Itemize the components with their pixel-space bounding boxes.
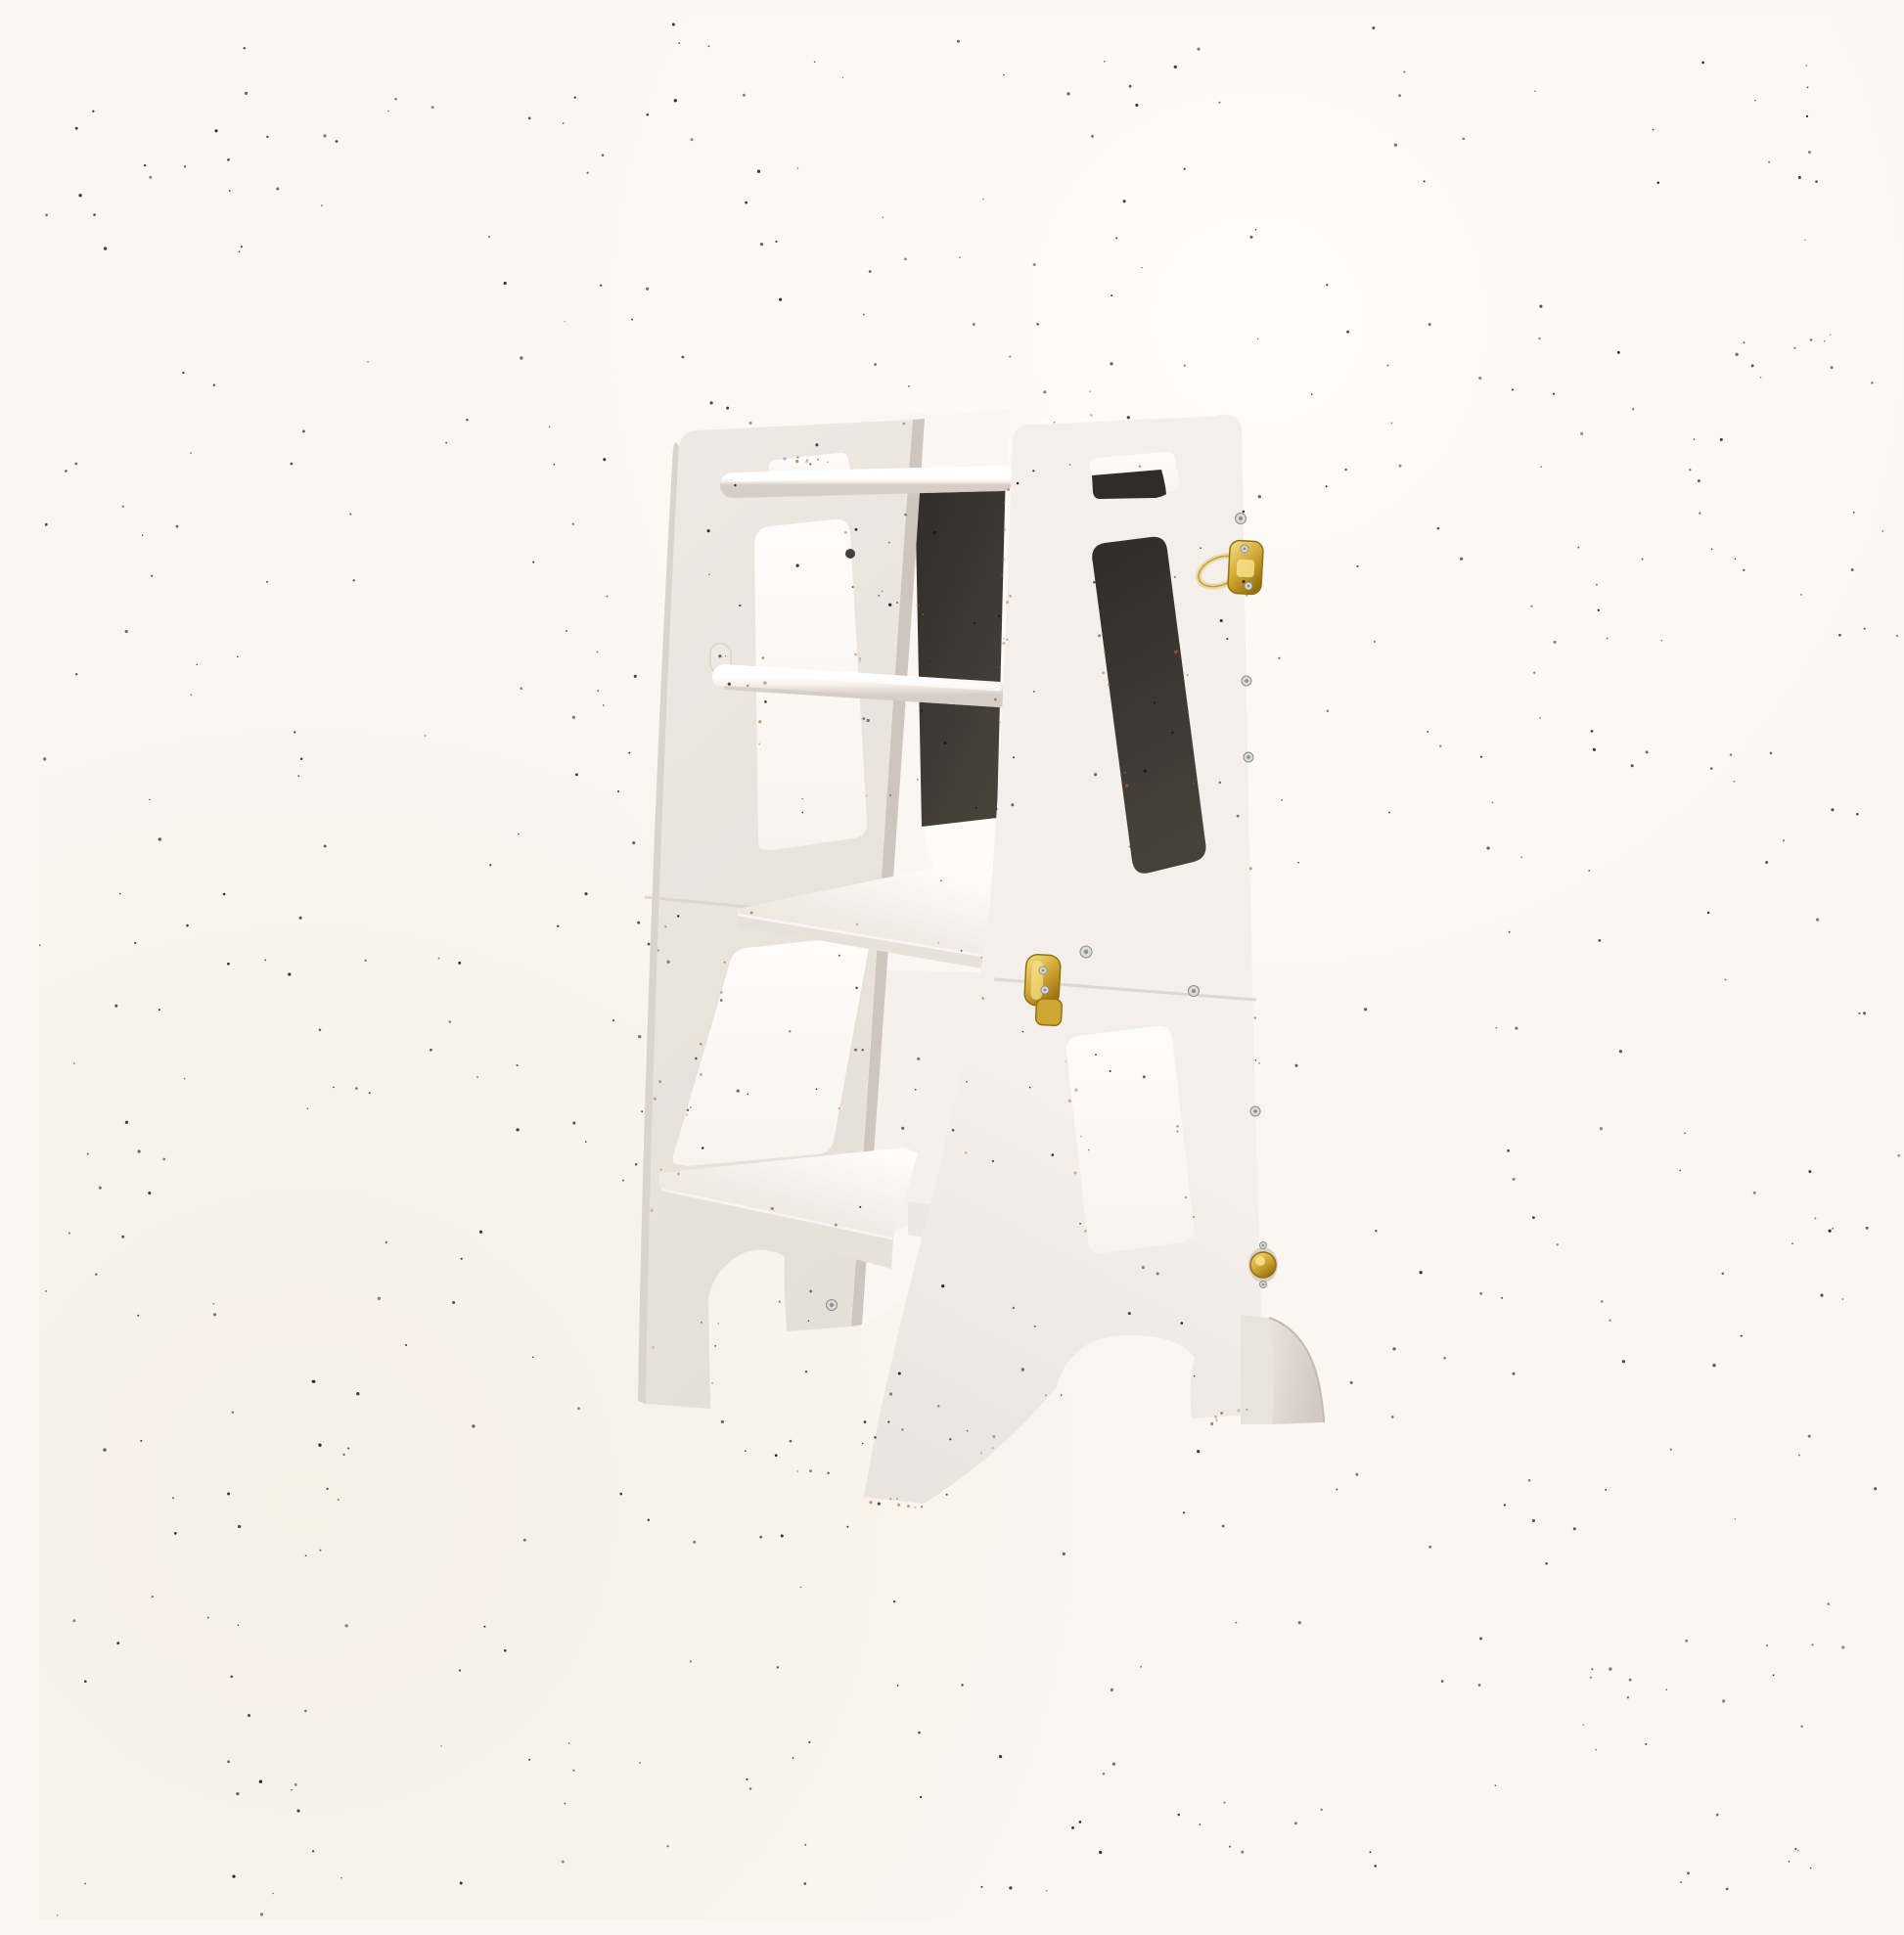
foot-front-face: [1241, 1315, 1273, 1424]
backdrop-shade: [39, 16, 1904, 1919]
window-hinge-notch: [845, 549, 855, 559]
chalkboard-panel: [915, 467, 1006, 827]
product-photo: White wooden Montessori learning tower s…: [39, 16, 1904, 1919]
latch-middle-hook: [1035, 998, 1062, 1025]
scene-canvas: [39, 16, 1904, 1919]
latch-top-tongue: [1237, 560, 1255, 578]
left-rear-leg-screw: [827, 1300, 838, 1311]
knob-highlight: [1255, 1256, 1265, 1266]
